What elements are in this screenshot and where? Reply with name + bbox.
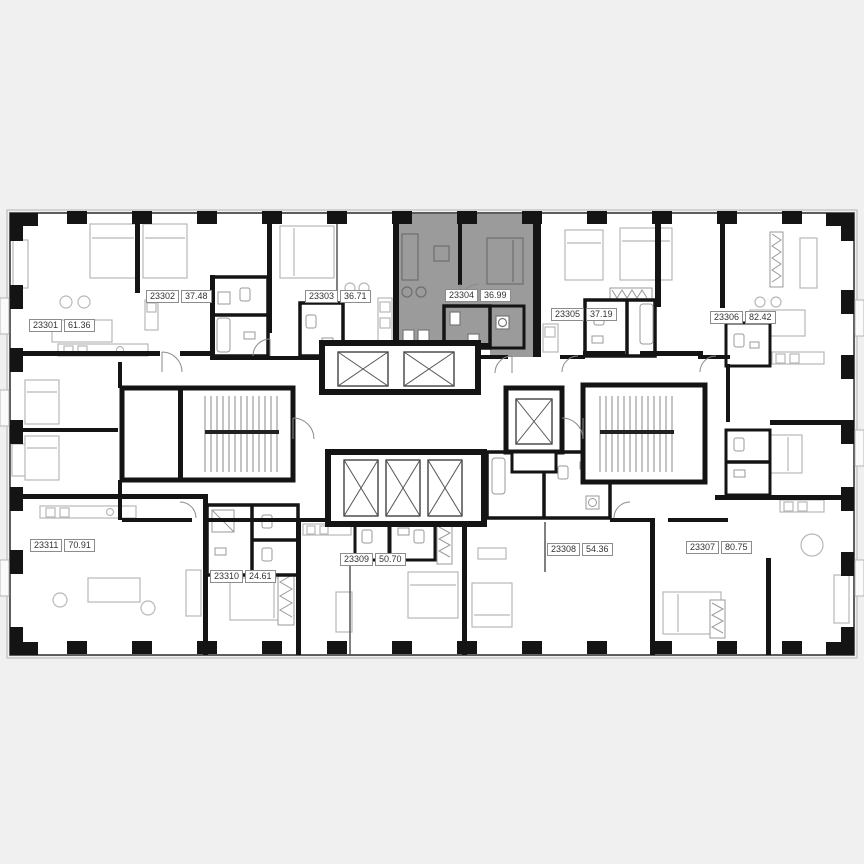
- stairwell-right: [583, 385, 705, 482]
- unit-label-23302[interactable]: 23302 37.48: [146, 290, 212, 303]
- unit-area[interactable]: 61.36: [64, 319, 95, 332]
- unit-label-23310[interactable]: 23310 24.61: [210, 570, 276, 583]
- unit-label-23307[interactable]: 23307 80.75: [686, 541, 752, 554]
- unit-area[interactable]: 50.70: [375, 553, 406, 566]
- elevator-bank-bottom: [328, 452, 484, 524]
- unit-number[interactable]: 23301: [29, 319, 62, 332]
- unit-area[interactable]: 36.99: [480, 289, 511, 302]
- unit-area[interactable]: 70.91: [64, 539, 95, 552]
- elevator-bank-top: [322, 343, 478, 392]
- unit-area[interactable]: 24.61: [245, 570, 276, 583]
- elevator-side: [506, 388, 562, 472]
- unit-area[interactable]: 36.71: [340, 290, 371, 303]
- floor-plan-canvas: [0, 0, 864, 864]
- unit-label-23301[interactable]: 23301 61.36: [29, 319, 95, 332]
- unit-label-23311[interactable]: 23311 70.91: [30, 539, 95, 552]
- unit-label-23305[interactable]: 23305 37.19: [551, 308, 617, 321]
- floor-plan-page: 23301 61.36 23302 37.48 23303 36.71 2330…: [0, 0, 864, 864]
- unit-area[interactable]: 54.36: [582, 543, 613, 556]
- stairwell-left: [122, 388, 293, 480]
- unit-area[interactable]: 82.42: [745, 311, 776, 324]
- unit-number[interactable]: 23302: [146, 290, 179, 303]
- unit-number[interactable]: 23309: [340, 553, 373, 566]
- unit-number[interactable]: 23304: [445, 289, 478, 302]
- unit-label-23308[interactable]: 23308 54.36: [547, 543, 613, 556]
- unit-number[interactable]: 23303: [305, 290, 338, 303]
- unit-label-23304[interactable]: 23304 36.99: [445, 289, 511, 302]
- unit-number[interactable]: 23305: [551, 308, 584, 321]
- unit-number[interactable]: 23311: [30, 539, 62, 552]
- unit-number[interactable]: 23308: [547, 543, 580, 556]
- unit-label-23309[interactable]: 23309 50.70: [340, 553, 406, 566]
- unit-number[interactable]: 23310: [210, 570, 243, 583]
- unit-label-23303[interactable]: 23303 36.71: [305, 290, 371, 303]
- unit-area[interactable]: 80.75: [721, 541, 752, 554]
- unit-number[interactable]: 23306: [710, 311, 743, 324]
- unit-label-23306[interactable]: 23306 82.42: [710, 311, 776, 324]
- unit-number[interactable]: 23307: [686, 541, 719, 554]
- unit-area[interactable]: 37.48: [181, 290, 212, 303]
- unit-area[interactable]: 37.19: [586, 308, 617, 321]
